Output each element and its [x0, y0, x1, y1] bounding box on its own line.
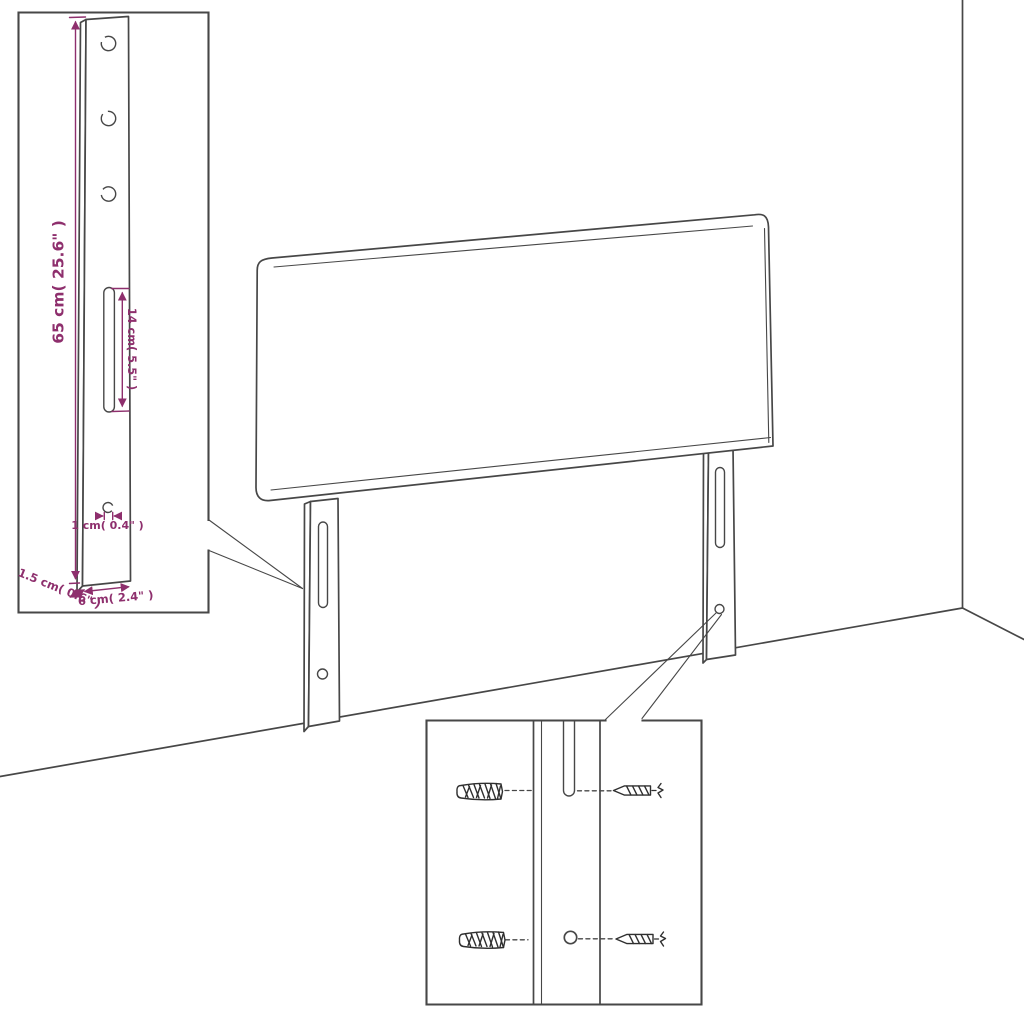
right-leg-hole: [715, 605, 724, 614]
headboard-panel: [256, 214, 773, 500]
inset-leg-slot: [104, 288, 115, 413]
assembly-diagram: 65 cm( 25.6" ) 14 cm( 5.5" ) 1 cm( 0.4" …: [0, 0, 1024, 1024]
leg-detail-inset: 65 cm( 25.6" ) 14 cm( 5.5" ) 1 cm( 0.4" …: [16, 13, 208, 613]
right-leg-slot: [716, 468, 725, 548]
mounting-detail-inset: [427, 721, 702, 1005]
left-leg-hole: [318, 669, 328, 679]
hole-diameter-label: 1 cm( 0.4" ): [71, 519, 143, 532]
right-callout-line-right: [642, 615, 722, 719]
headboard-right-leg: [703, 447, 736, 663]
left-leg-slot: [319, 522, 328, 608]
leg-height-label: 65 cm( 25.6" ): [50, 220, 68, 344]
floor-line-right: [963, 608, 1024, 640]
right-callout-line-left: [606, 613, 717, 720]
left-callout-line-upper: [209, 520, 303, 589]
diagram-svg: 65 cm( 25.6" ) 14 cm( 5.5" ) 1 cm( 0.4" …: [0, 0, 1024, 1024]
left-callout-line-lower: [209, 551, 303, 589]
headboard-left-leg: [304, 499, 340, 732]
callout-lines: [209, 520, 722, 720]
slot-length-label: 14 cm( 5.5" ): [125, 308, 138, 390]
panel-outline: [256, 214, 773, 500]
